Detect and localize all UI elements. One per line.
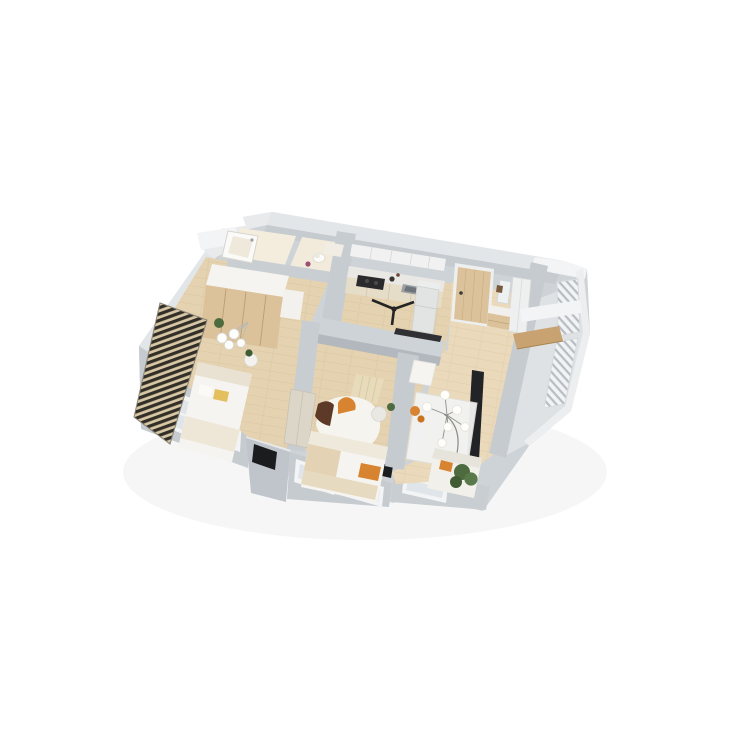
floorplan-svg bbox=[0, 0, 750, 750]
coffee-maker bbox=[389, 276, 394, 281]
chandelier-globe bbox=[461, 423, 470, 432]
pendant-globe bbox=[224, 340, 233, 349]
bedroom2-plant bbox=[387, 403, 395, 411]
bedroom1-plant bbox=[214, 318, 224, 328]
room-bathroom bbox=[222, 231, 258, 263]
pouf bbox=[372, 407, 387, 422]
floorplan-render: Aerial 3D cutaway render of a two-bedroo… bbox=[0, 0, 750, 750]
bedroom1-vanity bbox=[280, 289, 304, 320]
purple-decor bbox=[305, 261, 310, 266]
chandelier-globe bbox=[438, 439, 447, 448]
orange-flowers bbox=[410, 406, 420, 416]
plant-leaves bbox=[450, 476, 462, 488]
door-handle bbox=[459, 291, 463, 295]
chandelier-globe bbox=[422, 402, 431, 411]
page-background: Aerial 3D cutaway render of a two-bedroo… bbox=[0, 0, 750, 750]
lounge-chair bbox=[409, 360, 436, 386]
counter-decor bbox=[396, 273, 400, 277]
entry-door bbox=[454, 267, 491, 324]
orange-flowers-small bbox=[417, 415, 424, 422]
chandelier-globe bbox=[444, 423, 453, 432]
cooktop-burner bbox=[365, 279, 369, 283]
side-table-plant bbox=[245, 349, 252, 356]
fan-hub bbox=[391, 306, 396, 311]
pendant-globe bbox=[237, 339, 245, 347]
toilet-seat bbox=[314, 254, 320, 258]
wall-art bbox=[496, 285, 503, 293]
chandelier-globe bbox=[452, 405, 461, 414]
pendant-globe bbox=[229, 329, 239, 339]
plant-leaves bbox=[464, 472, 477, 485]
bathtub-tap bbox=[250, 238, 253, 241]
chandelier-globe bbox=[440, 390, 449, 399]
cooktop-burner bbox=[374, 281, 378, 285]
